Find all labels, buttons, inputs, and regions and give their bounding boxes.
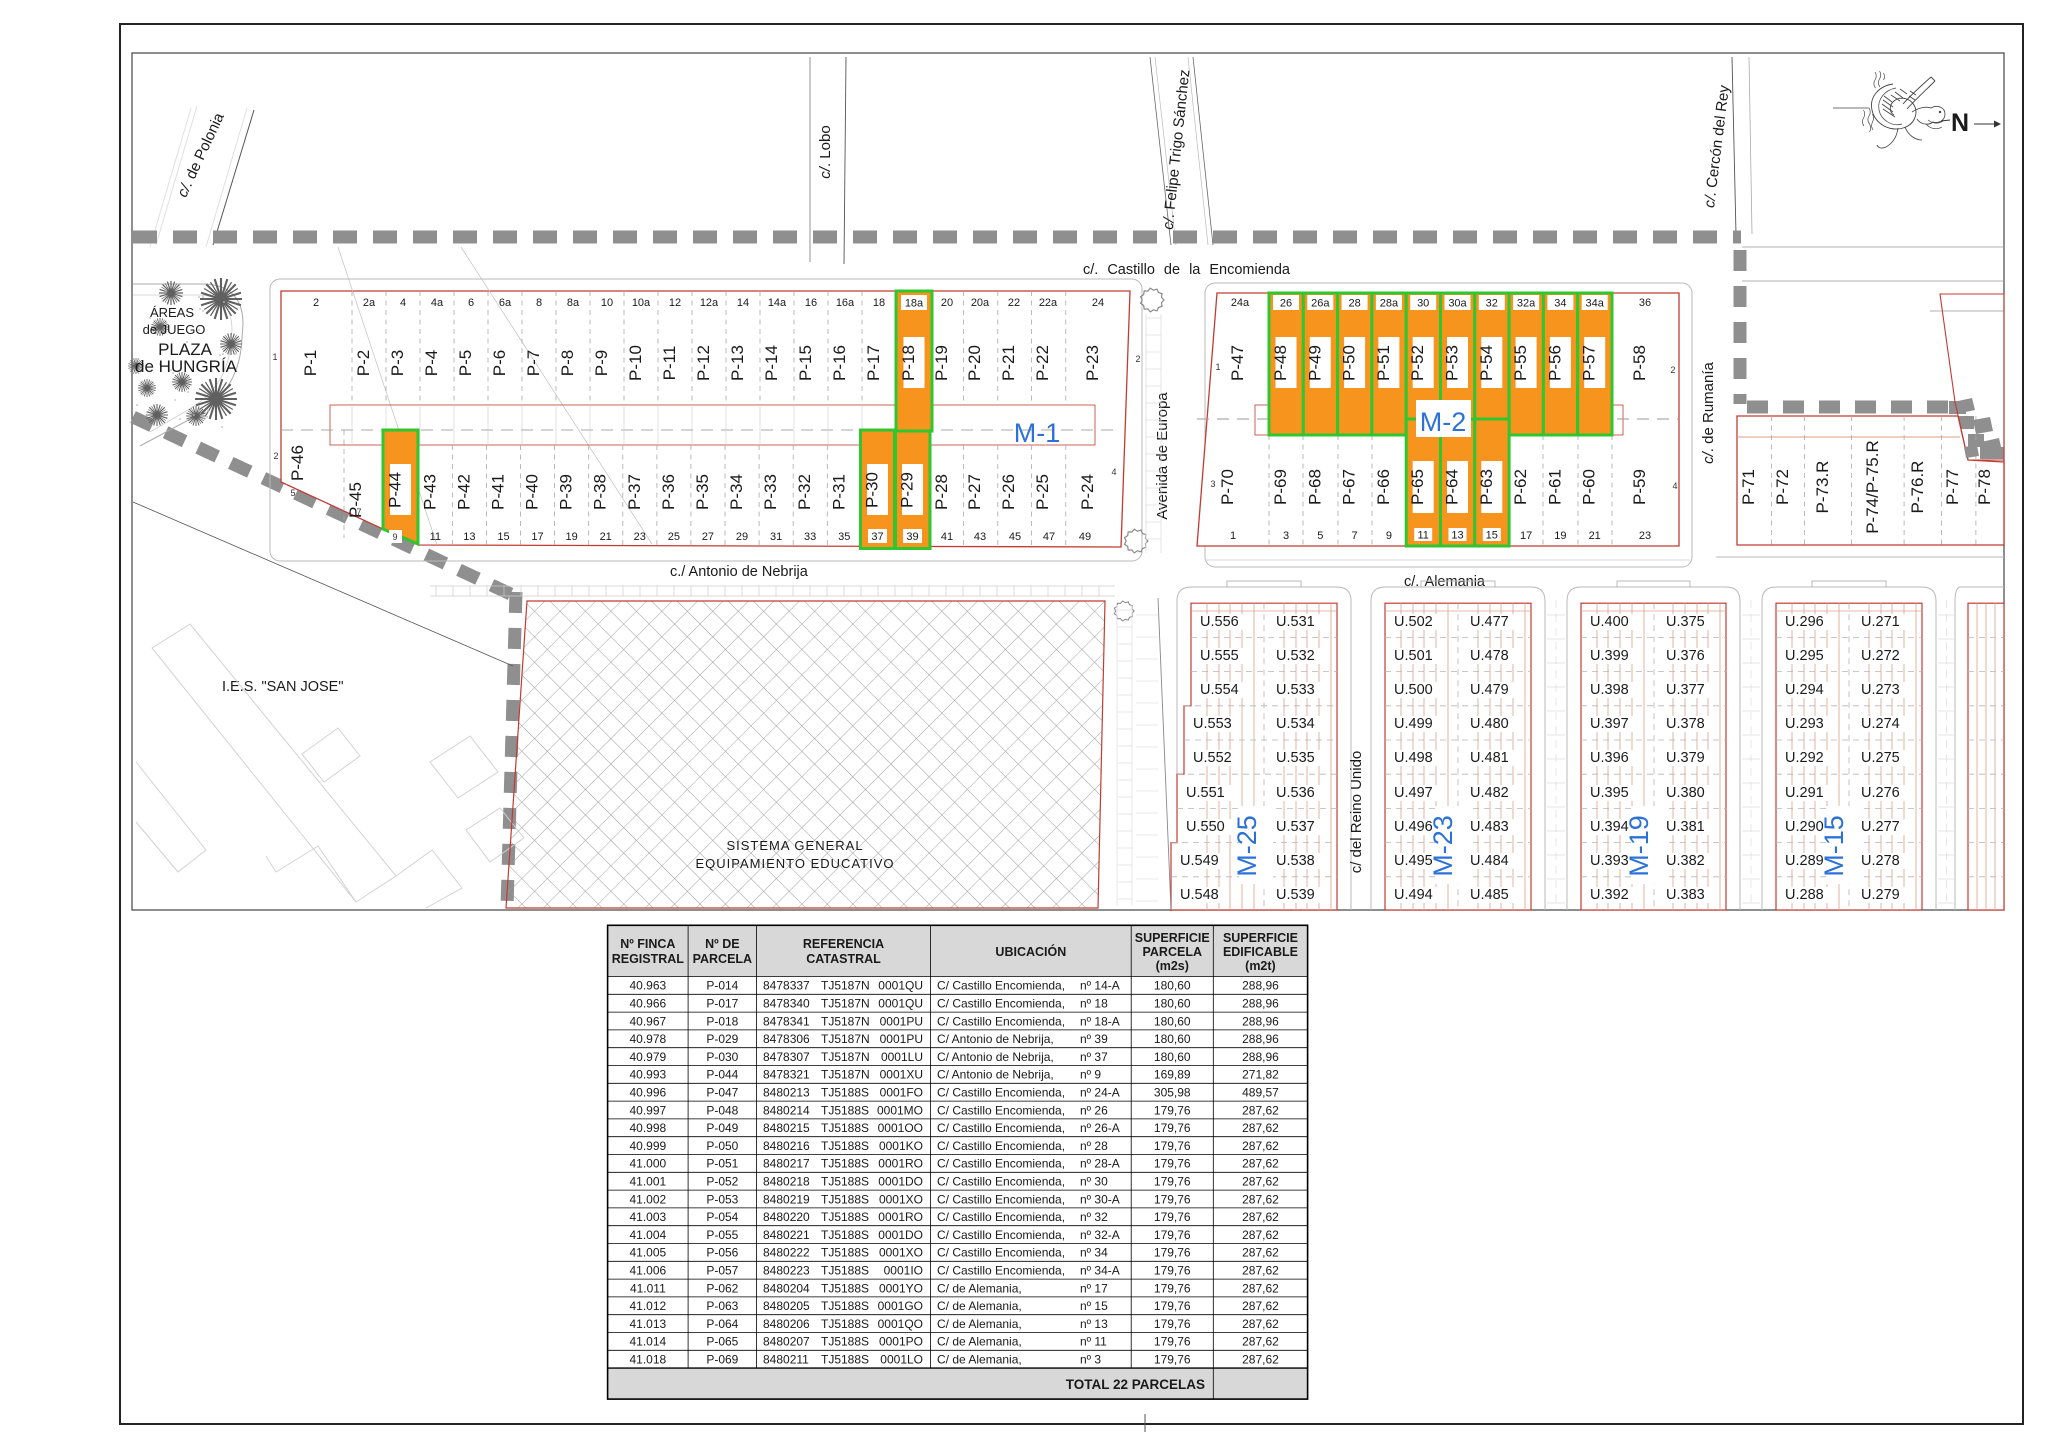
svg-text:U.376: U.376: [1666, 648, 1705, 664]
svg-text:287,62: 287,62: [1242, 1281, 1279, 1295]
svg-text:287,62: 287,62: [1242, 1228, 1279, 1242]
svg-text:TJ5188S: TJ5188S: [821, 1281, 869, 1295]
svg-text:U.398: U.398: [1590, 682, 1629, 698]
svg-text:P-35: P-35: [693, 474, 712, 510]
svg-text:C/ Antonio de Nebrija,: C/ Antonio de Nebrija,: [937, 1050, 1054, 1064]
svg-text:0001IO: 0001IO: [884, 1264, 923, 1278]
svg-text:TJ5188S: TJ5188S: [821, 1299, 869, 1313]
svg-text:c/. Alemania: c/. Alemania: [1404, 574, 1486, 590]
svg-text:C/ Castillo Encomienda,: C/ Castillo Encomienda,: [937, 1246, 1065, 1260]
svg-text:40.966: 40.966: [629, 997, 666, 1011]
svg-text:P-42: P-42: [454, 474, 473, 510]
svg-text:41.018: 41.018: [629, 1353, 666, 1367]
svg-text:40.967: 40.967: [629, 1014, 666, 1028]
svg-text:2: 2: [313, 297, 319, 309]
svg-text:13: 13: [463, 531, 475, 543]
svg-text:nº 9: nº 9: [1080, 1068, 1101, 1082]
svg-text:P-36: P-36: [659, 474, 678, 510]
svg-text:179,76: 179,76: [1154, 1210, 1191, 1224]
svg-text:4: 4: [1111, 467, 1116, 477]
svg-text:10a: 10a: [632, 297, 651, 309]
svg-text:P-63: P-63: [1477, 469, 1496, 505]
svg-text:P-47: P-47: [1228, 345, 1247, 381]
svg-text:nº 14-A: nº 14-A: [1080, 979, 1120, 993]
svg-text:287,62: 287,62: [1242, 1175, 1279, 1189]
svg-text:nº 34: nº 34: [1080, 1246, 1108, 1260]
svg-text:U.497: U.497: [1394, 785, 1433, 801]
svg-text:U.273: U.273: [1861, 682, 1900, 698]
svg-text:U.292: U.292: [1785, 750, 1824, 766]
svg-text:17: 17: [531, 531, 543, 543]
svg-text:P-56: P-56: [1545, 345, 1564, 381]
svg-text:5: 5: [1317, 530, 1323, 542]
svg-text:P-8: P-8: [558, 350, 577, 376]
svg-text:P-051: P-051: [706, 1157, 738, 1171]
svg-text:19: 19: [1554, 530, 1566, 542]
svg-text:489,57: 489,57: [1242, 1086, 1279, 1100]
svg-text:8480211: 8480211: [763, 1353, 809, 1367]
svg-text:P-044: P-044: [706, 1068, 738, 1082]
svg-text:179,76: 179,76: [1154, 1299, 1191, 1313]
svg-text:PARCELA: PARCELA: [1143, 945, 1203, 959]
svg-text:P-59: P-59: [1630, 469, 1649, 505]
svg-text:P-056: P-056: [706, 1246, 738, 1260]
svg-text:8480204: 8480204: [763, 1281, 810, 1295]
svg-text:c/ del Reino Unido: c/ del Reino Unido: [1348, 751, 1365, 874]
svg-text:28a: 28a: [1380, 298, 1399, 310]
svg-text:34a: 34a: [1586, 298, 1605, 310]
svg-text:REGISTRAL: REGISTRAL: [612, 952, 685, 966]
svg-text:U.532: U.532: [1276, 648, 1315, 664]
svg-text:nº 18: nº 18: [1080, 997, 1108, 1011]
svg-text:U.392: U.392: [1590, 887, 1629, 903]
svg-text:180,60: 180,60: [1154, 979, 1191, 993]
svg-text:U.499: U.499: [1394, 716, 1433, 732]
svg-text:P-64: P-64: [1443, 469, 1462, 505]
svg-text:287,62: 287,62: [1242, 1103, 1279, 1117]
svg-text:31: 31: [770, 531, 782, 543]
svg-text:P-69: P-69: [1271, 469, 1290, 505]
svg-text:41.005: 41.005: [629, 1246, 666, 1260]
svg-text:I.E.S. "SAN JOSE": I.E.S. "SAN JOSE": [222, 679, 344, 695]
svg-text:P-054: P-054: [706, 1210, 738, 1224]
svg-text:7: 7: [356, 507, 361, 517]
svg-text:nº 17: nº 17: [1080, 1281, 1108, 1295]
svg-text:11: 11: [430, 531, 441, 543]
svg-text:C/ Castillo Encomienda,: C/ Castillo Encomienda,: [937, 1157, 1065, 1171]
svg-text:U.533: U.533: [1276, 682, 1315, 698]
svg-text:4: 4: [400, 297, 406, 309]
svg-text:0001XO: 0001XO: [879, 1192, 923, 1206]
svg-text:P-7: P-7: [524, 350, 543, 376]
svg-text:de HUNGRÍA: de HUNGRÍA: [135, 357, 238, 376]
svg-text:TJ5188S: TJ5188S: [821, 1228, 869, 1242]
svg-text:8480207: 8480207: [763, 1335, 810, 1349]
svg-text:Avenida de Europa: Avenida de Europa: [1154, 392, 1171, 520]
svg-text:0001RO: 0001RO: [878, 1210, 923, 1224]
svg-text:U.501: U.501: [1394, 648, 1433, 664]
svg-text:c/. de Rumanía: c/. de Rumanía: [1700, 361, 1717, 463]
svg-text:18a: 18a: [905, 298, 924, 310]
svg-text:P-55: P-55: [1511, 345, 1530, 381]
svg-text:U.480: U.480: [1470, 716, 1509, 732]
svg-text:P-029: P-029: [706, 1032, 738, 1046]
svg-text:U.271: U.271: [1861, 614, 1900, 630]
svg-text:P-12: P-12: [694, 345, 713, 381]
svg-text:U.477: U.477: [1470, 614, 1509, 630]
svg-text:U.400: U.400: [1590, 614, 1629, 630]
svg-text:8478341: 8478341: [763, 1014, 810, 1028]
svg-text:U.531: U.531: [1276, 614, 1315, 630]
svg-text:TJ5187N: TJ5187N: [821, 1032, 870, 1046]
svg-text:P-66: P-66: [1374, 469, 1393, 505]
svg-text:2: 2: [1670, 365, 1675, 375]
svg-text:c./ Antonio de Nebrija: c./ Antonio de Nebrija: [670, 564, 809, 580]
svg-text:TJ5187N: TJ5187N: [821, 1014, 870, 1028]
svg-text:P-31: P-31: [829, 474, 848, 510]
svg-text:24a: 24a: [1231, 297, 1250, 309]
svg-text:(m2s): (m2s): [1156, 959, 1189, 973]
svg-text:(m2t): (m2t): [1245, 959, 1276, 973]
svg-text:16a: 16a: [836, 297, 855, 309]
svg-text:U.550: U.550: [1186, 819, 1225, 835]
svg-text:179,76: 179,76: [1154, 1175, 1191, 1189]
svg-text:P-13: P-13: [728, 345, 747, 381]
svg-text:nº 26-A: nº 26-A: [1080, 1121, 1120, 1135]
svg-text:288,96: 288,96: [1242, 1032, 1279, 1046]
svg-text:179,76: 179,76: [1154, 1317, 1191, 1331]
svg-text:U.394: U.394: [1590, 819, 1629, 835]
svg-text:P-049: P-049: [706, 1121, 738, 1135]
svg-text:287,62: 287,62: [1242, 1264, 1279, 1278]
svg-text:10: 10: [601, 297, 613, 309]
svg-text:TJ5188S: TJ5188S: [821, 1157, 869, 1171]
svg-text:C/ Castillo Encomienda,: C/ Castillo Encomienda,: [937, 1192, 1065, 1206]
svg-text:C/ Antonio de Nebrija,: C/ Antonio de Nebrija,: [937, 1068, 1054, 1082]
svg-text:43: 43: [974, 531, 986, 543]
svg-text:Nº DE: Nº DE: [705, 937, 739, 951]
svg-text:P-30: P-30: [863, 472, 882, 508]
svg-text:17: 17: [1520, 530, 1532, 542]
svg-text:287,62: 287,62: [1242, 1246, 1279, 1260]
svg-text:179,76: 179,76: [1154, 1192, 1191, 1206]
svg-text:P-53: P-53: [1443, 345, 1462, 381]
svg-text:40.997: 40.997: [629, 1103, 666, 1117]
svg-text:0001YO: 0001YO: [879, 1281, 923, 1295]
svg-text:U.537: U.537: [1276, 819, 1315, 835]
svg-text:287,62: 287,62: [1242, 1121, 1279, 1135]
svg-text:TJ5188S: TJ5188S: [821, 1264, 869, 1278]
svg-text:41.004: 41.004: [629, 1228, 666, 1242]
svg-text:C/ de Alemania,: C/ de Alemania,: [937, 1317, 1022, 1331]
svg-text:U.293: U.293: [1785, 716, 1824, 732]
svg-text:9: 9: [392, 532, 397, 542]
svg-text:P-65: P-65: [1408, 469, 1427, 505]
svg-text:nº 30: nº 30: [1080, 1175, 1108, 1189]
svg-text:24: 24: [1092, 297, 1104, 309]
svg-text:C/ Castillo Encomienda,: C/ Castillo Encomienda,: [937, 1264, 1065, 1278]
svg-text:U.538: U.538: [1276, 853, 1315, 869]
svg-text:nº 32-A: nº 32-A: [1080, 1228, 1120, 1242]
svg-text:3: 3: [1210, 479, 1215, 489]
svg-text:45: 45: [1009, 531, 1021, 543]
svg-text:nº 18-A: nº 18-A: [1080, 1014, 1120, 1028]
svg-text:41.011: 41.011: [630, 1281, 666, 1295]
svg-text:49: 49: [1079, 531, 1091, 543]
svg-text:P-064: P-064: [706, 1317, 738, 1331]
svg-text:P-014: P-014: [706, 979, 738, 993]
svg-text:8: 8: [536, 297, 542, 309]
svg-text:6: 6: [468, 297, 474, 309]
svg-text:ÁREAS: ÁREAS: [150, 305, 194, 320]
svg-text:287,62: 287,62: [1242, 1210, 1279, 1224]
svg-text:P-030: P-030: [706, 1050, 738, 1064]
svg-text:P-065: P-065: [706, 1335, 738, 1349]
svg-text:P-11: P-11: [660, 346, 679, 381]
svg-text:U.375: U.375: [1666, 614, 1705, 630]
svg-text:U.395: U.395: [1590, 785, 1629, 801]
svg-text:EDIFICABLE: EDIFICABLE: [1223, 945, 1298, 959]
svg-text:U.275: U.275: [1861, 750, 1900, 766]
svg-text:P-048: P-048: [706, 1103, 738, 1117]
svg-text:180,60: 180,60: [1154, 1032, 1191, 1046]
svg-text:P-055: P-055: [706, 1228, 738, 1242]
svg-text:0001MO: 0001MO: [877, 1103, 923, 1117]
svg-text:P-018: P-018: [706, 1014, 738, 1028]
svg-text:P-19: P-19: [932, 345, 951, 381]
svg-text:M-19: M-19: [1624, 815, 1654, 877]
svg-text:35: 35: [838, 531, 850, 543]
svg-text:nº 15: nº 15: [1080, 1299, 1108, 1313]
svg-text:P-61: P-61: [1545, 469, 1564, 505]
svg-text:287,62: 287,62: [1242, 1317, 1279, 1331]
svg-text:P-15: P-15: [796, 345, 815, 381]
svg-text:P-24: P-24: [1078, 474, 1097, 510]
svg-text:30a: 30a: [1448, 298, 1467, 310]
svg-text:15: 15: [1486, 530, 1498, 542]
svg-text:4a: 4a: [431, 297, 444, 309]
svg-text:C/ Castillo Encomienda,: C/ Castillo Encomienda,: [937, 1121, 1065, 1135]
svg-text:2: 2: [1135, 354, 1140, 364]
svg-text:8478340: 8478340: [763, 997, 810, 1011]
svg-text:6a: 6a: [499, 297, 512, 309]
svg-text:37: 37: [871, 531, 883, 543]
svg-text:P-34: P-34: [727, 474, 746, 510]
svg-text:TJ5188S: TJ5188S: [821, 1086, 869, 1100]
svg-text:180,60: 180,60: [1154, 1050, 1191, 1064]
svg-text:P-39: P-39: [557, 474, 576, 510]
svg-text:287,62: 287,62: [1242, 1157, 1279, 1171]
svg-text:28: 28: [1348, 298, 1360, 310]
svg-text:P-14: P-14: [762, 345, 781, 381]
svg-text:P-062: P-062: [706, 1281, 738, 1295]
svg-text:0001XO: 0001XO: [879, 1246, 923, 1260]
svg-text:0001QO: 0001QO: [878, 1317, 923, 1331]
svg-text:0001DO: 0001DO: [878, 1228, 923, 1242]
svg-text:29: 29: [736, 531, 748, 543]
svg-text:21: 21: [1589, 530, 1601, 542]
svg-text:8480219: 8480219: [763, 1192, 810, 1206]
svg-text:1: 1: [1215, 362, 1220, 372]
svg-text:P-6: P-6: [490, 350, 509, 376]
svg-text:179,76: 179,76: [1154, 1353, 1191, 1367]
svg-text:TJ5187N: TJ5187N: [821, 997, 870, 1011]
svg-text:P-29: P-29: [898, 472, 917, 508]
svg-text:U.380: U.380: [1666, 785, 1705, 801]
svg-text:8480220: 8480220: [763, 1210, 810, 1224]
svg-text:nº 37: nº 37: [1080, 1050, 1108, 1064]
svg-text:P-3: P-3: [388, 350, 407, 376]
svg-text:c/. Castillo de la Encomie: c/. Castillo de la Encomienda: [1083, 262, 1291, 278]
svg-text:TJ5188S: TJ5188S: [821, 1103, 869, 1117]
svg-text:U.555: U.555: [1200, 648, 1239, 664]
svg-text:287,62: 287,62: [1242, 1335, 1279, 1349]
svg-text:179,76: 179,76: [1154, 1246, 1191, 1260]
svg-text:40.996: 40.996: [629, 1086, 666, 1100]
svg-text:nº 30-A: nº 30-A: [1080, 1192, 1120, 1206]
svg-text:32a: 32a: [1517, 298, 1536, 310]
svg-text:C/ Castillo Encomienda,: C/ Castillo Encomienda,: [937, 1228, 1065, 1242]
svg-text:C/ Castillo Encomienda,: C/ Castillo Encomienda,: [937, 1014, 1065, 1028]
svg-text:U.379: U.379: [1666, 750, 1705, 766]
svg-text:P-51: P-51: [1374, 345, 1393, 381]
svg-text:U.396: U.396: [1590, 750, 1629, 766]
svg-text:U.377: U.377: [1666, 682, 1705, 698]
svg-text:41.006: 41.006: [629, 1264, 666, 1278]
svg-text:32: 32: [1486, 298, 1498, 310]
svg-text:PARCELA: PARCELA: [693, 952, 753, 966]
svg-text:P-2: P-2: [354, 350, 373, 376]
svg-text:P-23: P-23: [1083, 345, 1102, 381]
svg-text:P-77: P-77: [1943, 469, 1962, 505]
svg-text:0001RO: 0001RO: [878, 1157, 923, 1171]
svg-text:179,76: 179,76: [1154, 1281, 1191, 1295]
svg-text:P-22: P-22: [1033, 345, 1052, 381]
svg-text:P-52: P-52: [1408, 345, 1427, 381]
svg-text:8480218: 8480218: [763, 1175, 810, 1189]
svg-text:P-43: P-43: [420, 474, 439, 510]
svg-text:P-46: P-46: [288, 445, 307, 481]
svg-text:U.554: U.554: [1200, 682, 1239, 698]
svg-text:16: 16: [805, 297, 817, 309]
svg-text:de JUEGO: de JUEGO: [143, 322, 206, 337]
svg-text:26: 26: [1280, 298, 1292, 310]
svg-text:179,76: 179,76: [1154, 1103, 1191, 1117]
svg-text:SUPERFICIE: SUPERFICIE: [1135, 931, 1210, 945]
svg-text:P-76.R: P-76.R: [1908, 461, 1927, 514]
svg-text:U.495: U.495: [1394, 853, 1433, 869]
svg-text:P-053: P-053: [706, 1192, 738, 1206]
svg-text:287,62: 287,62: [1242, 1353, 1279, 1367]
svg-text:12: 12: [669, 297, 681, 309]
svg-text:8480222: 8480222: [763, 1246, 810, 1260]
svg-text:0001GO: 0001GO: [878, 1299, 923, 1313]
svg-text:U.294: U.294: [1785, 682, 1824, 698]
svg-text:U.548: U.548: [1180, 887, 1219, 903]
svg-text:22: 22: [1008, 297, 1020, 309]
svg-text:C/ de Alemania,: C/ de Alemania,: [937, 1353, 1022, 1367]
svg-text:U.553: U.553: [1193, 716, 1232, 732]
svg-text:179,76: 179,76: [1154, 1121, 1191, 1135]
svg-text:20a: 20a: [971, 297, 990, 309]
svg-text:U.288: U.288: [1785, 887, 1824, 903]
svg-text:M-23: M-23: [1428, 815, 1458, 877]
svg-text:U.378: U.378: [1666, 716, 1705, 732]
svg-text:P-78: P-78: [1975, 469, 1994, 505]
svg-text:U.295: U.295: [1785, 648, 1824, 664]
svg-text:U.485: U.485: [1470, 887, 1509, 903]
svg-text:U.382: U.382: [1666, 853, 1705, 869]
svg-text:0001DO: 0001DO: [878, 1175, 923, 1189]
svg-text:nº 28: nº 28: [1080, 1139, 1108, 1153]
svg-text:18: 18: [873, 297, 885, 309]
svg-text:C/ de Alemania,: C/ de Alemania,: [937, 1335, 1022, 1349]
svg-text:P-71: P-71: [1739, 469, 1758, 505]
svg-text:C/ Castillo Encomienda,: C/ Castillo Encomienda,: [937, 1103, 1065, 1117]
svg-text:23: 23: [634, 531, 646, 543]
svg-text:U.296: U.296: [1785, 614, 1824, 630]
svg-text:TJ5187N: TJ5187N: [821, 1050, 870, 1064]
svg-text:40.978: 40.978: [629, 1032, 666, 1046]
svg-text:30: 30: [1417, 298, 1429, 310]
svg-text:P-28: P-28: [932, 474, 951, 510]
svg-text:M-1: M-1: [1014, 418, 1061, 448]
svg-text:P-32: P-32: [795, 474, 814, 510]
svg-text:U.556: U.556: [1200, 614, 1239, 630]
svg-text:P-48: P-48: [1271, 345, 1290, 381]
svg-text:0001QU: 0001QU: [878, 997, 923, 1011]
svg-text:P-37: P-37: [625, 474, 644, 510]
svg-text:179,76: 179,76: [1154, 1157, 1191, 1171]
svg-text:P-41: P-41: [488, 474, 507, 510]
svg-text:14: 14: [737, 297, 749, 309]
svg-text:U.381: U.381: [1666, 819, 1705, 835]
svg-text:TJ5188S: TJ5188S: [821, 1192, 869, 1206]
svg-text:8480206: 8480206: [763, 1317, 810, 1331]
svg-text:SISTEMA GENERAL: SISTEMA GENERAL: [726, 838, 863, 853]
svg-text:8480223: 8480223: [763, 1264, 810, 1278]
svg-text:2a: 2a: [363, 297, 376, 309]
svg-text:41.014: 41.014: [629, 1335, 666, 1349]
svg-text:P-50: P-50: [1340, 345, 1359, 381]
svg-text:287,62: 287,62: [1242, 1192, 1279, 1206]
svg-text:nº 39: nº 39: [1080, 1032, 1108, 1046]
svg-text:40.963: 40.963: [629, 979, 666, 993]
svg-text:P-27: P-27: [965, 474, 984, 510]
svg-text:U.481: U.481: [1470, 750, 1509, 766]
svg-text:TJ5188S: TJ5188S: [821, 1121, 869, 1135]
svg-text:287,62: 287,62: [1242, 1299, 1279, 1313]
svg-text:P-33: P-33: [761, 474, 780, 510]
svg-text:26a: 26a: [1311, 298, 1330, 310]
svg-text:P-38: P-38: [591, 474, 610, 510]
svg-text:288,96: 288,96: [1242, 1014, 1279, 1028]
svg-text:41.003: 41.003: [629, 1210, 666, 1224]
svg-text:U.289: U.289: [1785, 853, 1824, 869]
svg-text:27: 27: [702, 531, 714, 543]
svg-text:C/ Castillo Encomienda,: C/ Castillo Encomienda,: [937, 1210, 1065, 1224]
svg-text:25: 25: [668, 531, 680, 543]
svg-text:22a: 22a: [1039, 297, 1058, 309]
svg-text:SUPERFICIE: SUPERFICIE: [1223, 931, 1298, 945]
svg-text:U.482: U.482: [1470, 785, 1509, 801]
svg-text:3: 3: [1283, 530, 1289, 542]
svg-text:9: 9: [1386, 530, 1392, 542]
svg-text:U.291: U.291: [1785, 785, 1824, 801]
svg-text:179,76: 179,76: [1154, 1264, 1191, 1278]
svg-text:nº 13: nº 13: [1080, 1317, 1108, 1331]
svg-text:TJ5188S: TJ5188S: [821, 1139, 869, 1153]
